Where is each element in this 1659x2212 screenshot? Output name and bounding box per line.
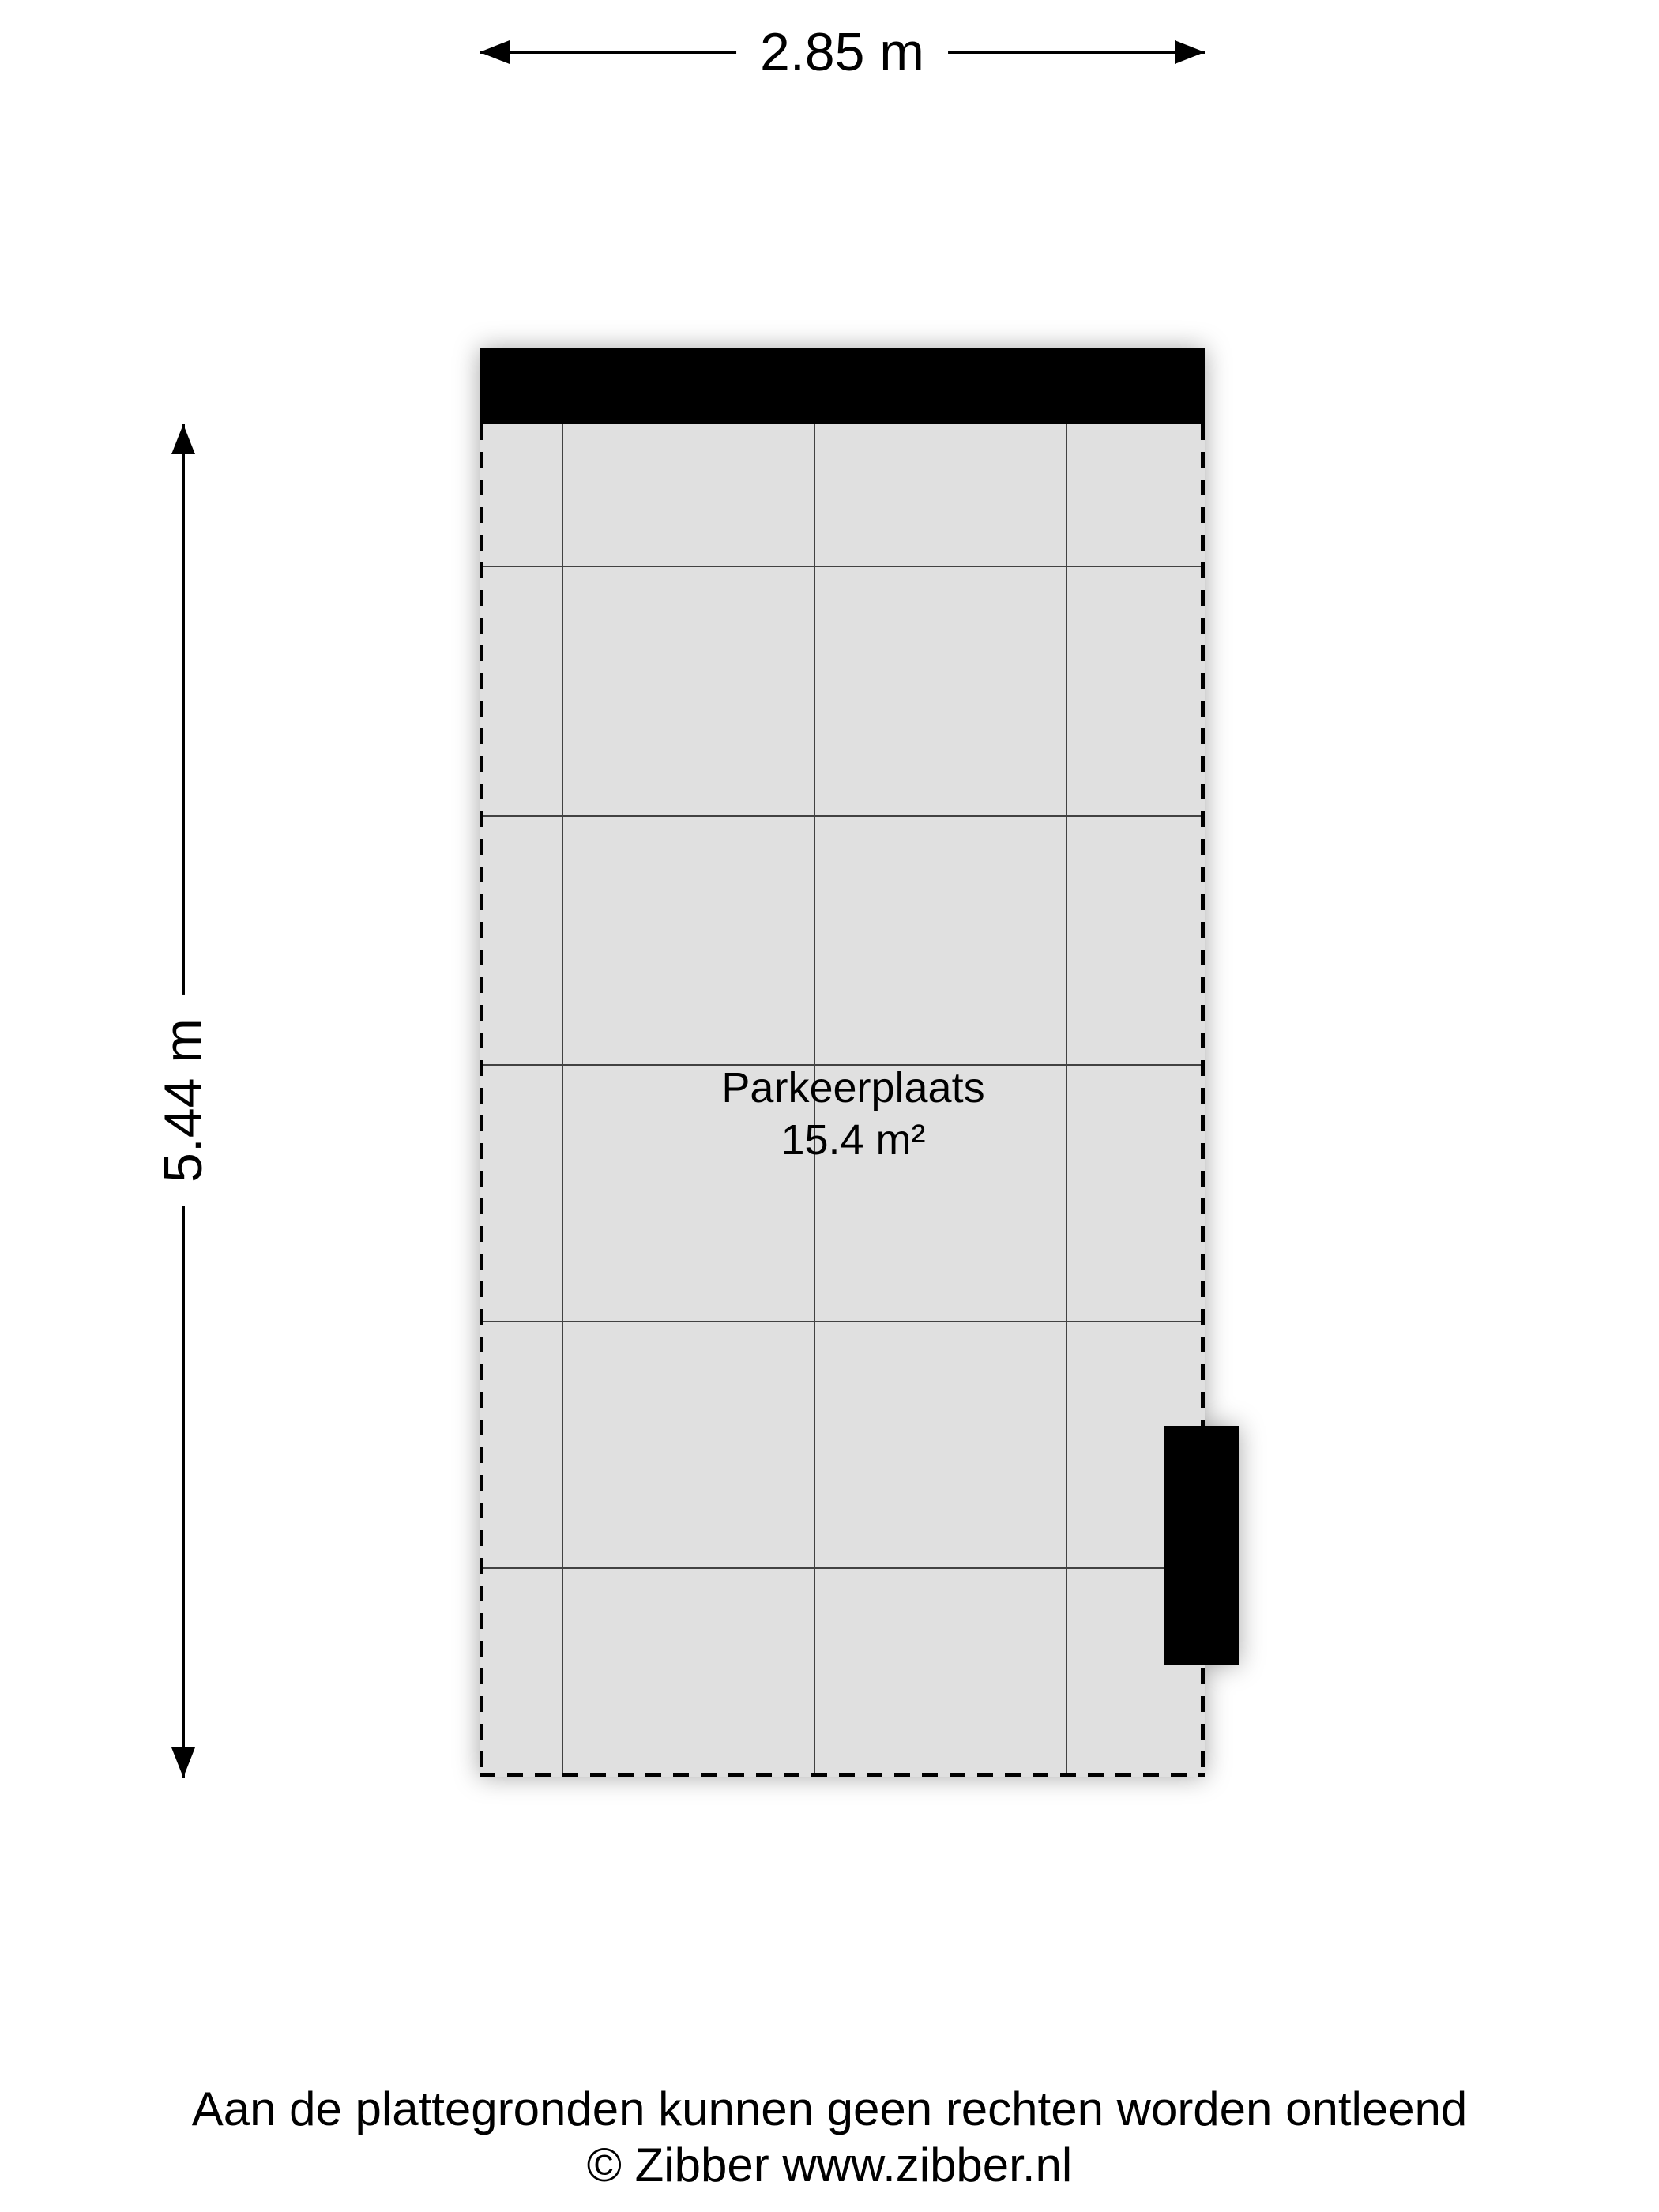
- floorplan-page: 2.85 m 5.44 m Parkeerplaats: [0, 0, 1659, 2212]
- footer: Aan de plattegronden kunnen geen rechten…: [0, 2081, 1659, 2193]
- disclaimer-text: Aan de plattegronden kunnen geen rechten…: [0, 2081, 1659, 2137]
- grid-line-vertical: [1066, 424, 1067, 1777]
- grid-line-horizontal: [480, 1321, 1205, 1322]
- boundary-dashed-bottom: [480, 1773, 1205, 1777]
- parking-area: Parkeerplaats 15.4 m²: [480, 424, 1205, 1777]
- room-name: Parkeerplaats: [721, 1062, 984, 1114]
- pole: [1164, 1426, 1239, 1665]
- grid-line-horizontal: [480, 1567, 1205, 1569]
- boundary-dashed-left: [480, 424, 483, 1777]
- grid-line-horizontal: [480, 815, 1205, 817]
- room-label: Parkeerplaats 15.4 m²: [721, 1062, 984, 1166]
- copyright-text: © Zibber www.zibber.nl: [0, 2137, 1659, 2193]
- grid-line-horizontal: [480, 566, 1205, 567]
- room-area: 15.4 m²: [721, 1114, 984, 1166]
- grid-line-vertical: [562, 424, 563, 1777]
- wall: [480, 348, 1205, 424]
- parking-space-plan: Parkeerplaats 15.4 m²: [0, 0, 1659, 2212]
